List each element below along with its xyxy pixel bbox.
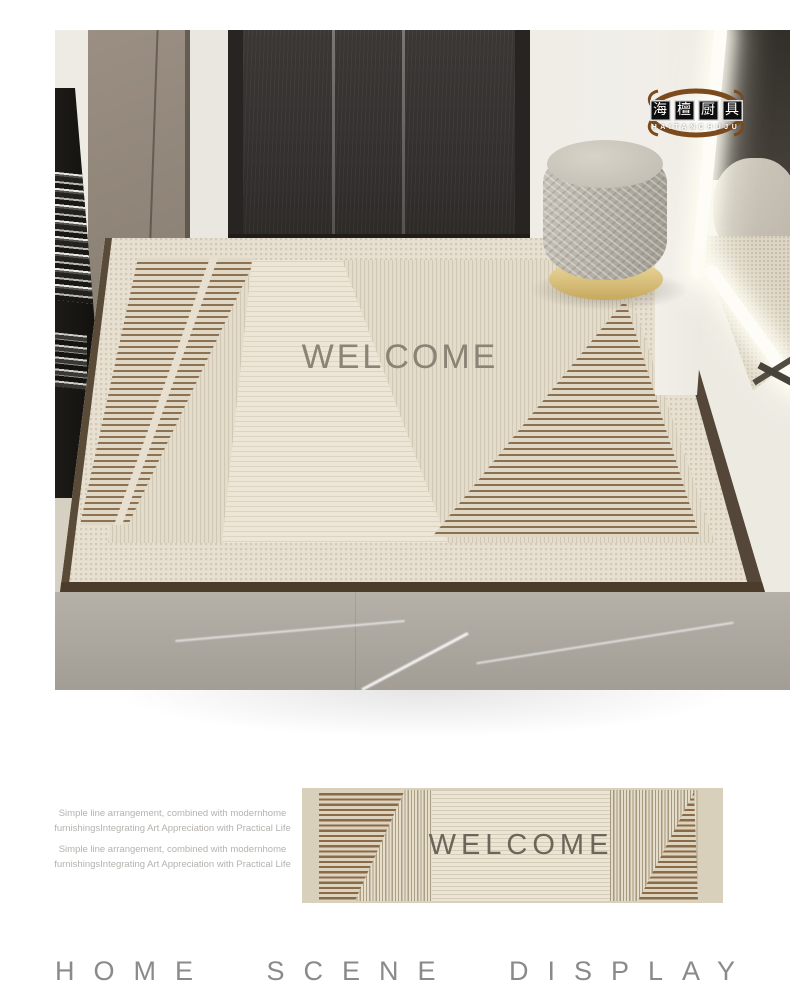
stool-cushion-top: [547, 140, 663, 188]
footer-title: HOME SCENE DISPLAY: [0, 956, 790, 987]
page: WELCOME: [0, 0, 790, 1006]
logo-seal-char: 厨: [698, 100, 719, 121]
book-stack: [55, 332, 87, 389]
door-wood-grain: [228, 30, 530, 240]
door-frame: [515, 30, 530, 238]
product-mat-preview: WELCOME: [302, 788, 723, 903]
logo-seal-char: 海: [650, 100, 671, 121]
description-line: furnishingsIntegrating Art Appreciation …: [50, 858, 295, 873]
door-frame: [228, 30, 243, 243]
photo-drop-shadow: [110, 690, 735, 738]
logo-seal-row: 海 檀 厨 具: [640, 100, 752, 121]
entry-door: [228, 30, 530, 240]
description-line: Simple line arrangement, combined with m…: [50, 807, 295, 822]
marble-seam: [355, 592, 356, 690]
logo-seal-char: 具: [722, 100, 743, 121]
doormat-welcome-text: WELCOME: [290, 338, 510, 377]
door-groove: [332, 30, 335, 236]
product-welcome-text: WELCOME: [429, 829, 614, 862]
description-line: Simple line arrangement, combined with m…: [50, 843, 295, 858]
scene-photo: WELCOME: [55, 30, 790, 690]
doormat-edge: [60, 582, 765, 592]
description-text: Simple line arrangement, combined with m…: [50, 807, 295, 872]
marble-floor: [55, 592, 790, 690]
description-line: furnishingsIntegrating Art Appreciation …: [50, 822, 295, 837]
product-center-panel: WELCOME: [432, 790, 610, 901]
brand-logo: 海 檀 厨 具 HAITANCHUJU: [640, 80, 752, 146]
logo-latin-name: HAITANCHUJU: [640, 124, 752, 131]
door-groove: [402, 30, 405, 236]
logo-seal-char: 檀: [674, 100, 695, 121]
